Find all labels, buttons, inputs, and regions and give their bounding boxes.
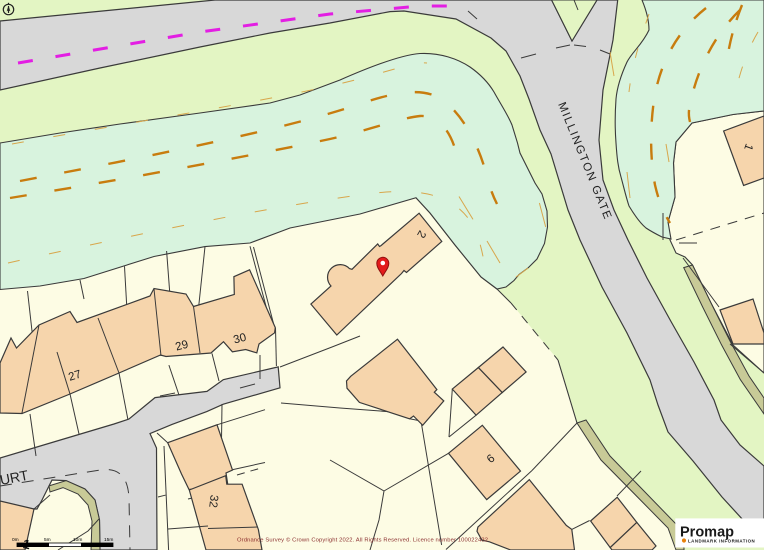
svg-text:5m: 5m [44,537,51,543]
svg-text:10m: 10m [73,537,82,543]
svg-text:32: 32 [206,494,219,508]
svg-text:0m: 0m [12,537,19,543]
svg-text:Ordnance Survey © Crown Copyri: Ordnance Survey © Crown Copyright 2022. … [237,537,488,544]
svg-text:15m: 15m [104,537,113,543]
svg-text:LANDMARK INFORMATION: LANDMARK INFORMATION [688,539,755,544]
